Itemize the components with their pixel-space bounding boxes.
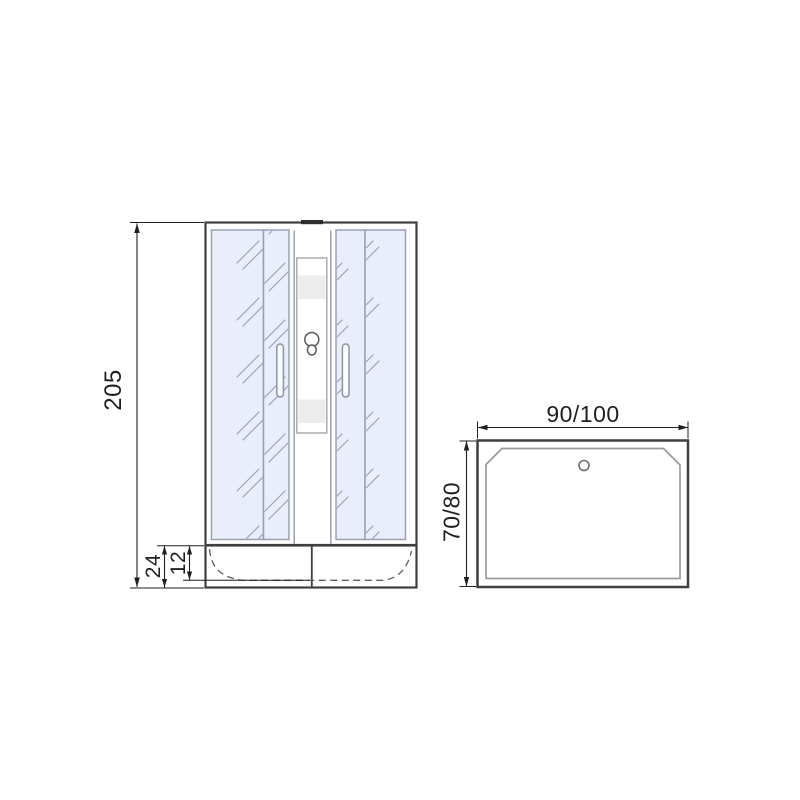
center-column [297, 258, 327, 433]
technical-drawing: 205 24 12 [0, 0, 800, 800]
drain-hole-icon [579, 461, 589, 471]
dimension-height-205: 205 [100, 223, 204, 589]
width-dimension-label: 90/100 [546, 401, 619, 427]
height-dimension-label: 205 [100, 369, 127, 411]
column-band-top [298, 276, 325, 300]
tray-height-dimension-label: 24 [142, 554, 165, 578]
door-handle-left [277, 344, 284, 397]
glass-glint-outer-right [366, 231, 405, 539]
tray-depth-dimension-label: 12 [167, 551, 190, 575]
dimension-tray-12: 12 [167, 546, 309, 580]
glass-glint-outer-left [213, 231, 263, 539]
column-band-bottom [298, 400, 325, 424]
top-connector-tick [301, 220, 323, 224]
door-handle-right [342, 344, 349, 397]
dimension-depth-70-80: 70/80 [439, 441, 477, 587]
top-view-drawing: 90/100 70/80 [439, 401, 689, 587]
shower-tray-front [206, 546, 417, 588]
knob-drop-icon [307, 345, 316, 355]
drawing-canvas: 205 24 12 [0, 0, 800, 800]
tray-basin-dashed-line [210, 549, 412, 580]
front-view-drawing: 205 24 12 [100, 220, 417, 588]
depth-dimension-label: 70/80 [439, 482, 465, 542]
dimension-width-90-100: 90/100 [478, 401, 689, 439]
glass-glint-door-right [337, 231, 364, 539]
